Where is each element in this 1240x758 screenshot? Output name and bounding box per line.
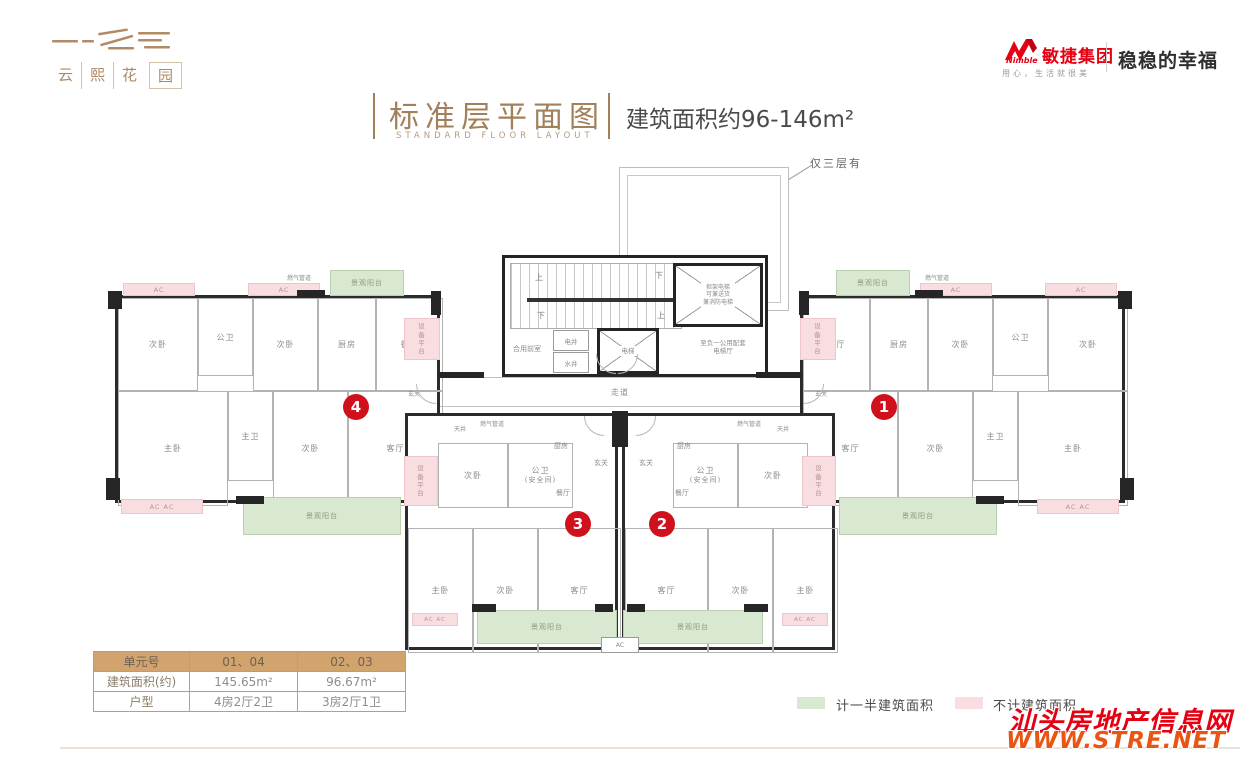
stretcher-elevator-label: 可兼送货 [703, 291, 733, 299]
room-bathroom: 公卫 [993, 298, 1048, 376]
wall-segment [976, 496, 1004, 504]
courtyard-label: 天井 [777, 424, 789, 433]
room-bedroom: 次卧 [898, 391, 973, 506]
ac-box: AC [601, 637, 639, 653]
wall-segment [236, 496, 264, 504]
elevator-hall-label: 至负一公用配套 电梯厅 [681, 338, 765, 356]
project-logo-name: 云 熙 花 园 [50, 62, 182, 89]
room-bedroom: 次卧 [273, 391, 348, 506]
stretcher-elevator: 担架电梯 可兼送货 兼消防电梯 [673, 263, 763, 327]
room-kitchen: 厨房 [318, 298, 376, 391]
title-bar-left [373, 93, 375, 139]
room-bedroom: 次卧 [118, 298, 198, 391]
foyer-label: 玄关 [639, 458, 653, 468]
room-master-bath: 主卫 [228, 391, 273, 481]
room-master-bedroom: 主卧 [1018, 391, 1128, 506]
cell-area: 145.65m² [190, 672, 298, 692]
room-master-bedroom: 主卧 [408, 528, 473, 653]
wall-segment [915, 290, 943, 298]
row-label: 户型 [94, 692, 190, 712]
shared-front-room-label: 合用前室 [513, 344, 541, 354]
safe-bath-line2: (安全间) [690, 476, 721, 485]
table-header-row: 单元号 01、04 02、03 [94, 652, 406, 672]
watermark-url: WWW.STRE.NET [1006, 728, 1226, 754]
ac-platform: AC [123, 283, 195, 296]
landscape-balcony: 景观阳台 [836, 270, 910, 296]
title-bar-right [608, 93, 610, 139]
header-cell: 01、04 [190, 652, 298, 672]
room-bedroom: 次卧 [253, 298, 318, 391]
dining-label: 餐厅 [675, 488, 689, 498]
unit-1-marker: 1 [871, 394, 897, 420]
logo-char: 熙 [81, 62, 113, 89]
ac-platform: AC [1045, 283, 1117, 296]
unit-spec-table: 单元号 01、04 02、03 建筑面积(约) 145.65m² 96.67m²… [93, 651, 406, 712]
legend-no-area-swatch [955, 697, 983, 709]
project-logo-mark [50, 28, 174, 58]
logo-char: 园 [149, 62, 182, 89]
staircase: 上 下 下 上 [510, 263, 682, 329]
gas-pipe-label: 燃气管道 [737, 419, 761, 428]
wall-segment [297, 290, 325, 298]
gas-pipe-label: 燃气管道 [287, 273, 311, 282]
room-master-bedroom: 主卧 [773, 528, 838, 653]
unit-4-marker: 4 [343, 394, 369, 420]
table-row: 建筑面积(约) 145.65m² 96.67m² [94, 672, 406, 692]
safe-bath-line1: 公卫 [525, 466, 556, 476]
room-master-bath: 主卫 [973, 391, 1018, 481]
unit-3-marker: 3 [565, 511, 591, 537]
wall-segment [1118, 291, 1132, 309]
area-range: 建筑面积约96-146m² [626, 100, 854, 134]
wall-segment [438, 372, 484, 378]
brand-tagline: 用心，生活就很美 [1002, 68, 1090, 79]
wall-segment [106, 478, 120, 500]
safe-bath-line2: (安全间) [525, 476, 556, 485]
ac-platform: AC AC [121, 499, 203, 514]
landscape-balcony: 景观阳台 [839, 497, 997, 535]
stair-down-label: 下 [655, 270, 663, 281]
stair-rail [527, 298, 677, 302]
legend-half-area-swatch [797, 697, 825, 709]
landscape-balcony: 景观阳台 [330, 270, 404, 296]
elevator-hall-line2: 电梯厅 [683, 347, 763, 355]
wall-segment [108, 291, 122, 309]
page-subtitle: STANDARD FLOOR LAYOUT [396, 131, 594, 141]
logo-char: 花 [113, 62, 145, 89]
ac-platform: AC AC [1037, 499, 1119, 514]
room-safe-bathroom: 公卫 (安全间) [508, 443, 573, 508]
electric-shaft: 电井 [553, 330, 589, 351]
room-bedroom: 次卧 [1048, 298, 1128, 391]
room-bedroom: 次卧 [928, 298, 993, 391]
equipment-platform: 设备平台 [404, 318, 440, 360]
landscape-balcony: 景观阳台 [243, 497, 401, 535]
brand-slogan: 稳稳的幸福 [1118, 46, 1218, 73]
room-bedroom: 次卧 [438, 443, 508, 508]
table-row: 户型 4房2厅2卫 3房2厅1卫 [94, 692, 406, 712]
water-shaft: 水井 [553, 352, 589, 373]
roof-leader-line [788, 165, 812, 181]
logo-char: 云 [50, 62, 81, 89]
roof-note: 仅三层有 [810, 155, 862, 171]
row-label: 建筑面积(约) [94, 672, 190, 692]
equipment-platform: 设备平台 [404, 456, 438, 506]
foyer-label: 玄关 [594, 458, 608, 468]
landscape-balcony: 景观阳台 [623, 610, 763, 644]
room-master-bedroom: 主卧 [118, 391, 228, 506]
kitchen-label: 厨房 [554, 441, 568, 451]
wall-segment [431, 291, 441, 315]
gas-pipe-label: 燃气管道 [480, 419, 504, 428]
wall-segment [756, 372, 802, 378]
nimble-wordmark: Nimble [1006, 56, 1038, 65]
wall-segment [612, 411, 628, 447]
room-bathroom: 公卫 [198, 298, 253, 376]
page-title: 标准层平面图 [389, 92, 605, 136]
cell-layout: 3房2厅1卫 [298, 692, 406, 712]
dining-label: 餐厅 [556, 488, 570, 498]
landscape-balcony: 景观阳台 [477, 610, 617, 644]
ac-platform: AC AC [782, 613, 828, 626]
stair-up-label: 上 [657, 310, 665, 321]
equipment-platform: 设备平台 [800, 318, 836, 360]
room-safe-bathroom: 公卫 (安全间) [673, 443, 738, 508]
stair-up-label: 上 [535, 272, 543, 283]
courtyard-label: 天井 [454, 424, 466, 433]
header-cell: 02、03 [298, 652, 406, 672]
room-bedroom: 次卧 [738, 443, 808, 508]
room-kitchen: 厨房 [870, 298, 928, 391]
corridor: 走道 [438, 377, 802, 407]
brand-name: 敏捷集团 [1042, 42, 1114, 67]
ac-platform: AC AC [412, 613, 458, 626]
unit-01: 餐厅 厨房 次卧 公卫 次卧 客厅 次卧 主卫 主卧 [800, 295, 1125, 503]
header-cell: 单元号 [94, 652, 190, 672]
safe-bath-line1: 公卫 [690, 466, 721, 476]
brand-divider [1106, 42, 1107, 72]
flyer-page: 云 熙 花 园 Nimble 敏捷集团 用心，生活就很美 稳稳的幸福 标准层平面… [0, 0, 1240, 758]
stretcher-elevator-label: 兼消防电梯 [703, 299, 733, 307]
corridor-label: 走道 [611, 387, 629, 398]
kitchen-label: 厨房 [677, 441, 691, 451]
wall-segment [472, 604, 496, 612]
gas-pipe-label: 燃气管道 [925, 273, 949, 282]
equipment-platform: 设备平台 [802, 456, 836, 506]
unit-04: 次卧 公卫 次卧 厨房 餐厅 主卧 主卫 次卧 客厅 [115, 295, 440, 503]
wall-segment [595, 604, 613, 612]
wall-segment [744, 604, 768, 612]
legend-half-area-label: 计一半建筑面积 [836, 695, 934, 714]
unit-2-marker: 2 [649, 511, 675, 537]
wall-segment [1120, 478, 1134, 500]
wall-segment [627, 604, 645, 612]
elevator-hall-line1: 至负一公用配套 [683, 339, 763, 347]
cell-area: 96.67m² [298, 672, 406, 692]
stair-down-label: 下 [537, 310, 545, 321]
wall-segment [799, 291, 809, 315]
cell-layout: 4房2厅2卫 [190, 692, 298, 712]
